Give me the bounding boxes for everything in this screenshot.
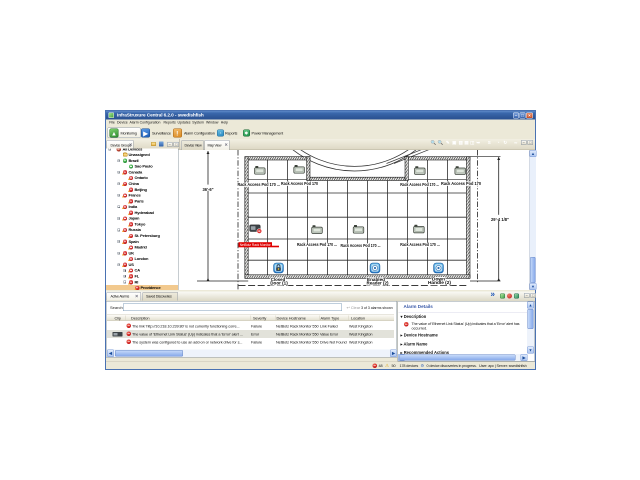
svg-text:29'-4 1/8": 29'-4 1/8" [491,217,509,222]
svg-text:NetBotz Rack Monitor: NetBotz Rack Monitor [239,243,271,247]
svg-text:Rack Access Pod 170 ...: Rack Access Pod 170 ... [340,243,380,248]
svg-text:Rack Access Pod 170: Rack Access Pod 170 [441,181,482,186]
svg-text:Rack Access Pod 170 ...: Rack Access Pod 170 ... [297,242,337,247]
svg-text:Rack Access Pod 170 ...: Rack Access Pod 170 ... [400,242,440,247]
svg-text:Rack Access Pod 170 ...: Rack Access Pod 170 ... [237,182,280,187]
svg-text:Handle (2): Handle (2) [428,280,452,285]
svg-text:36'-6": 36'-6" [202,187,213,192]
svg-text:Door (1): Door (1) [270,281,288,286]
svg-text:Rack Access Pod 170 ...: Rack Access Pod 170 ... [400,182,439,187]
svg-text:Reader (2): Reader (2) [366,281,389,286]
svg-text:Rack Access Pod 170: Rack Access Pod 170 [281,181,319,186]
